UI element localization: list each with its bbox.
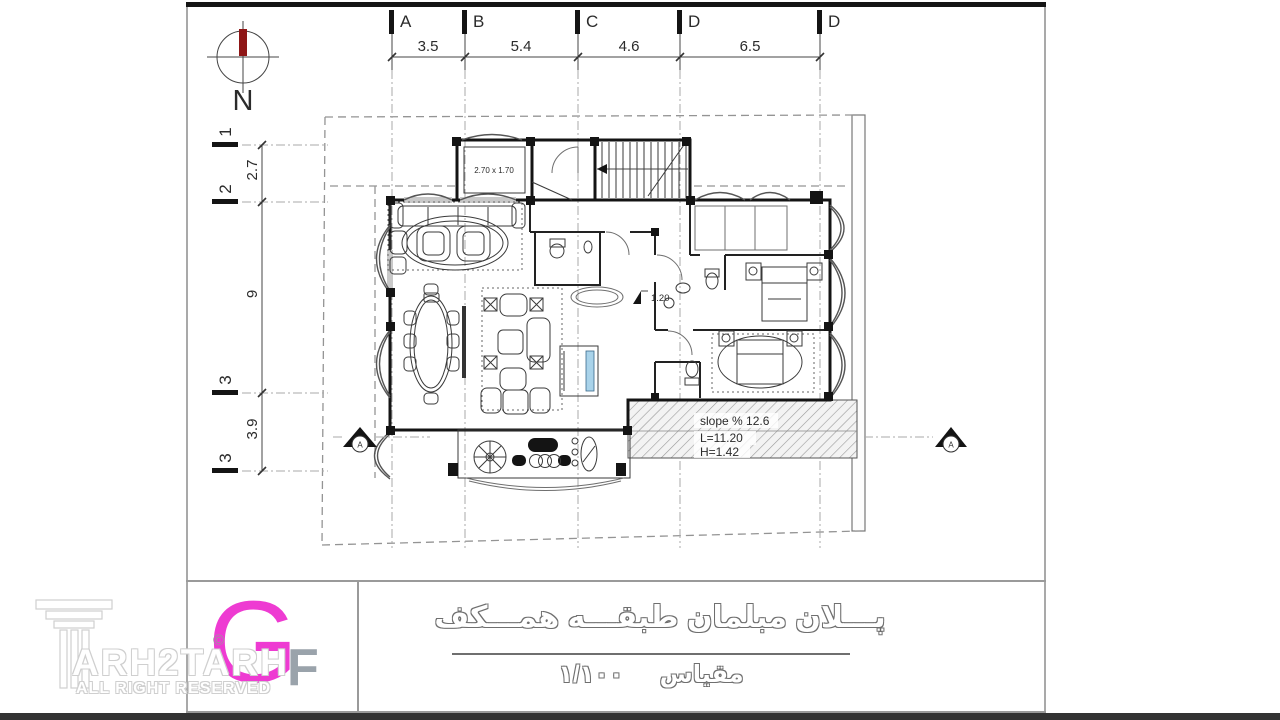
scale-label: مقیاس xyxy=(660,660,744,689)
ramp-area: slope % 12.6 L=11.20 H=1.42 xyxy=(628,400,857,459)
compass-north-label: N xyxy=(233,85,254,117)
watermark-brand: ARH2TARH xyxy=(72,642,289,684)
dim-row: 3.9 xyxy=(244,419,261,440)
level-marker-value: 1.20 xyxy=(651,293,670,304)
grid-column-label: D xyxy=(688,12,700,31)
grid-columns-header: A B C D D 3.5 5.4 4.6 6.5 xyxy=(388,10,840,61)
title-underline xyxy=(452,653,850,655)
grid-column-label: A xyxy=(400,12,412,31)
dim-row: 9 xyxy=(244,290,261,298)
scale-line: مقیاس ۱/۱۰۰ xyxy=(452,660,850,689)
dim-col: 5.4 xyxy=(511,38,532,55)
logo-letter-f: F xyxy=(287,638,319,698)
grid-row-label: 3 xyxy=(216,375,235,384)
elevator-size-label: 2.70 x 1.70 xyxy=(474,166,514,175)
dim-col: 6.5 xyxy=(740,38,761,55)
section-label: A xyxy=(357,441,363,450)
grid-rows-header: 1 2 3 3 2.7 9 3.9 xyxy=(212,127,266,475)
page-bottom-bar xyxy=(0,713,1280,720)
watermark-tagline: ALL RIGHT RESERVED xyxy=(76,680,271,698)
compass-needle-icon xyxy=(239,29,247,56)
ramp-height-label: H=1.42 xyxy=(700,445,739,459)
ramp-length-label: L=11.20 xyxy=(700,431,743,445)
grid-column-label: C xyxy=(586,12,598,31)
drawing-title: پـــلان مبلمان طبقـــه همـــکف xyxy=(380,600,940,635)
tv-screen xyxy=(586,351,594,391)
dim-col: 3.5 xyxy=(418,38,439,55)
section-marker-right: A xyxy=(864,427,967,452)
grid-row-label: 2 xyxy=(216,184,235,193)
dim-col: 4.6 xyxy=(619,38,640,55)
dim-row: 2.7 xyxy=(244,160,261,181)
grid-column-label: B xyxy=(473,12,484,31)
titleblock-divider xyxy=(357,580,359,713)
drawing-page: slope % 12.6 L=11.20 H=1.42 xyxy=(0,0,1280,720)
titleblock-border-top xyxy=(186,580,1046,582)
scale-value: ۱/۱۰۰ xyxy=(558,660,623,689)
grid-row-label: 1 xyxy=(216,127,235,136)
grid-column-label: D xyxy=(828,12,840,31)
north-compass: N xyxy=(207,21,279,117)
watermark-logo: ARH2TARH ALL RIGHT RESERVED xyxy=(28,596,288,706)
grid-row-label: 3 xyxy=(216,453,235,462)
section-label: A xyxy=(948,441,954,450)
ramp-slope-label: slope % 12.6 xyxy=(700,414,770,428)
